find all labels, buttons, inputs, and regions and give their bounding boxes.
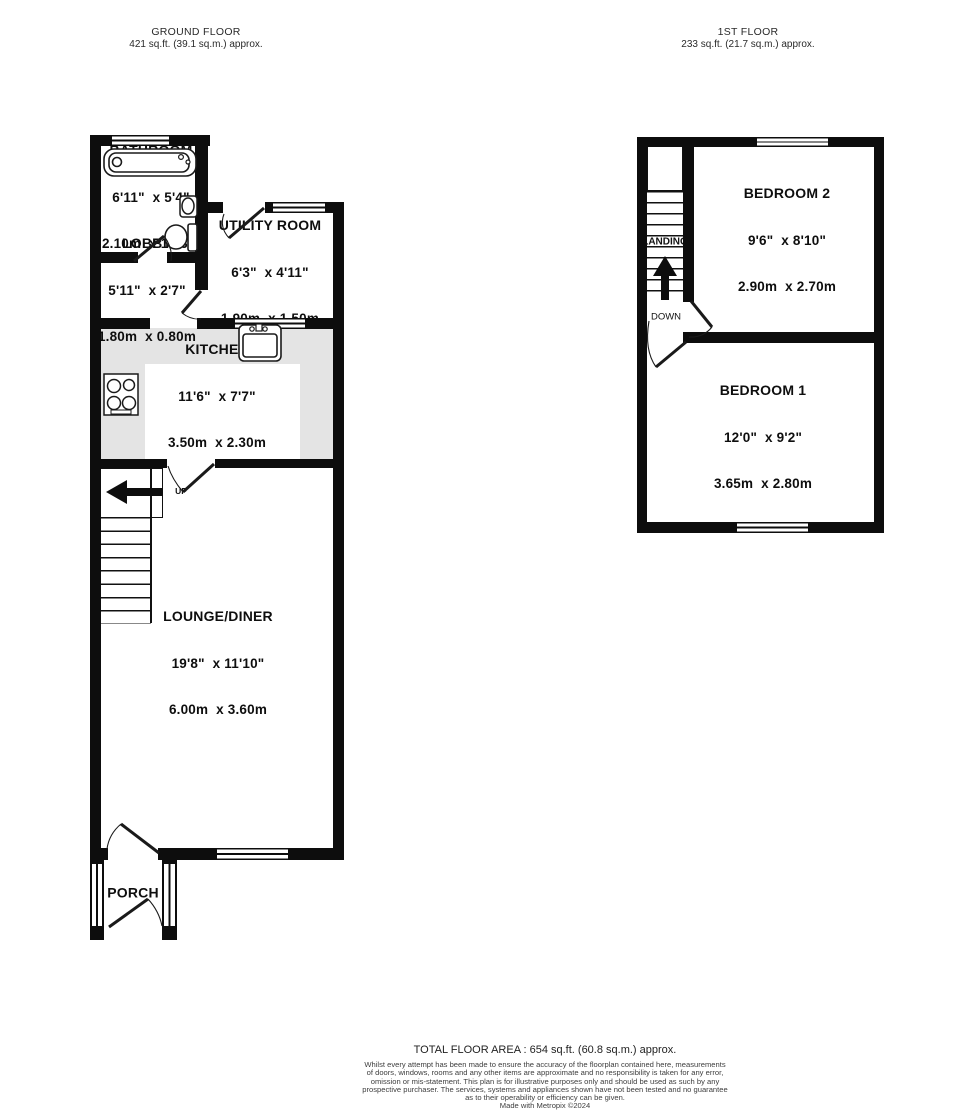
sink-icon	[239, 324, 281, 361]
bathtub-icon	[104, 149, 196, 176]
kitchen-lounge-door-arc	[168, 464, 214, 492]
floorplan-page: GROUND FLOOR 421 sq.ft. (39.1 sq.m.) app…	[0, 0, 980, 1115]
lounge-porch-door-arc	[107, 824, 159, 853]
porch-front-door-arc	[109, 899, 162, 927]
lobby-utility-door-arc	[182, 291, 201, 319]
ff-stairs-arrow-icon	[653, 256, 677, 300]
gf-stairs-arrow-icon	[106, 480, 163, 504]
basin-icon	[180, 196, 197, 217]
bedroom2-door-arc	[689, 301, 712, 337]
hob-icon	[104, 374, 138, 415]
bedroom1-door-arc	[648, 321, 686, 367]
fixtures-overlay	[0, 0, 980, 1115]
utility-external-door-arc	[222, 208, 264, 238]
